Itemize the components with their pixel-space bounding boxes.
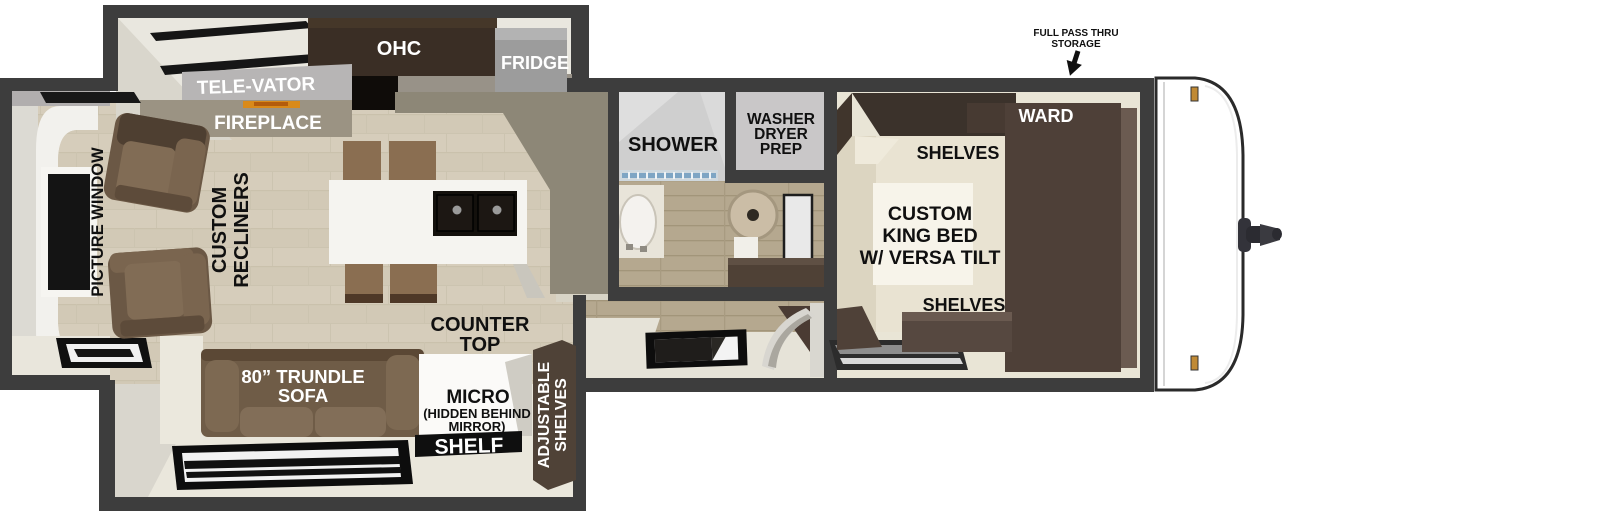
svg-text:W/ VERSA TILT: W/ VERSA TILT	[860, 247, 1001, 269]
svg-text:OHC: OHC	[377, 38, 421, 60]
svg-text:FRIDGE: FRIDGE	[501, 53, 569, 73]
svg-text:RECLINERS: RECLINERS	[231, 172, 253, 288]
svg-text:MICRO: MICRO	[446, 387, 509, 408]
svg-text:80” TRUNDLE: 80” TRUNDLE	[241, 366, 364, 387]
svg-text:SHELVES: SHELVES	[553, 378, 570, 452]
svg-text:SOFA: SOFA	[278, 385, 328, 406]
svg-text:MIRROR): MIRROR)	[448, 419, 505, 434]
svg-text:PICTURE WINDOW: PICTURE WINDOW	[89, 147, 107, 297]
svg-text:COUNTER: COUNTER	[431, 314, 530, 336]
svg-text:TELE-VATOR: TELE-VATOR	[197, 74, 316, 99]
svg-text:CUSTOM: CUSTOM	[888, 203, 972, 225]
svg-text:KING BED: KING BED	[882, 225, 977, 247]
svg-text:STORAGE: STORAGE	[1051, 39, 1101, 50]
svg-text:SHELF: SHELF	[434, 434, 504, 459]
svg-text:SHOWER: SHOWER	[628, 134, 719, 156]
svg-text:CUSTOM: CUSTOM	[209, 187, 231, 273]
svg-text:WARD: WARD	[1019, 106, 1074, 126]
svg-text:FULL PASS THRU: FULL PASS THRU	[1033, 28, 1118, 39]
svg-text:FIREPLACE: FIREPLACE	[214, 113, 322, 134]
svg-text:SHELVES: SHELVES	[923, 295, 1006, 315]
svg-text:PREP: PREP	[760, 141, 802, 158]
svg-text:TOP: TOP	[460, 334, 501, 356]
svg-text:ADJUSTABLE: ADJUSTABLE	[536, 361, 553, 468]
svg-text:SHELVES: SHELVES	[917, 143, 1000, 163]
